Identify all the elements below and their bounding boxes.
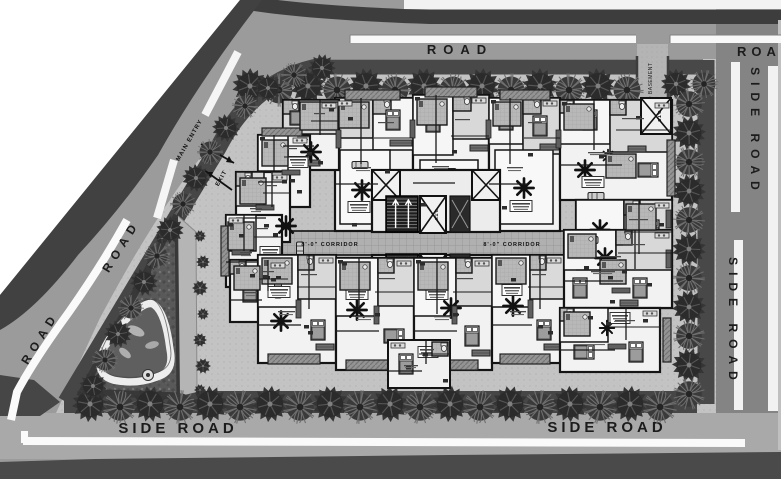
svg-text:ROAD: ROAD xyxy=(427,42,493,57)
svg-text:ROAD: ROAD xyxy=(737,44,781,59)
svg-text:O.T.S: O.T.S xyxy=(434,209,439,220)
svg-text:SIDE ROAD: SIDE ROAD xyxy=(118,420,237,437)
svg-text:8'-0" CORRIDOR: 8'-0" CORRIDOR xyxy=(483,242,540,248)
svg-text:SIDE ROAD: SIDE ROAD xyxy=(547,419,666,436)
svg-text:8'-0" CORRIDOR: 8'-0" CORRIDOR xyxy=(301,242,358,248)
svg-text:O.T.S: O.T.S xyxy=(657,110,662,121)
svg-text:SIDE ROAD: SIDE ROAD xyxy=(748,67,762,197)
svg-text:SIDE ROAD: SIDE ROAD xyxy=(726,257,740,387)
